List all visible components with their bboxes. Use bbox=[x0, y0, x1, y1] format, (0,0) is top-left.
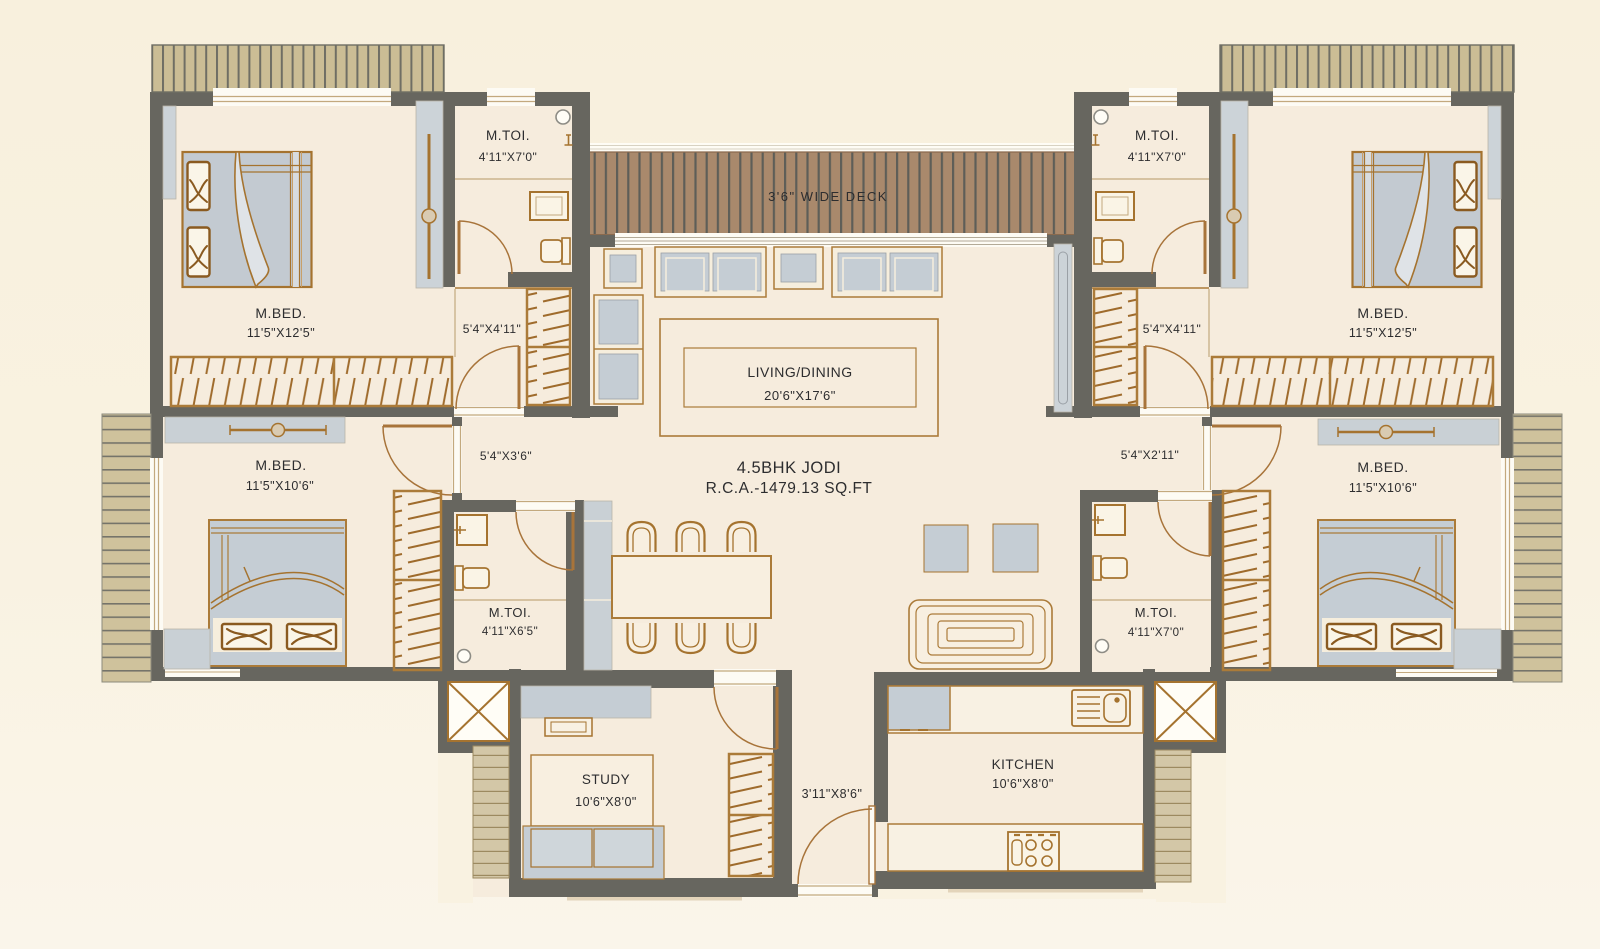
svg-text:STUDY: STUDY bbox=[582, 772, 630, 787]
svg-text:R.C.A.-1479.13 SQ.FT: R.C.A.-1479.13 SQ.FT bbox=[706, 480, 873, 497]
svg-text:11'5"X10'6": 11'5"X10'6" bbox=[246, 479, 314, 493]
svg-text:10'6"X8'0": 10'6"X8'0" bbox=[575, 795, 637, 809]
svg-text:11'5"X10'6": 11'5"X10'6" bbox=[1349, 481, 1417, 495]
svg-text:M.BED.: M.BED. bbox=[1357, 459, 1408, 475]
svg-text:5'4"X2'11": 5'4"X2'11" bbox=[1121, 448, 1180, 462]
svg-text:LIVING/DINING: LIVING/DINING bbox=[747, 364, 852, 380]
svg-text:M.BED.: M.BED. bbox=[255, 457, 306, 473]
svg-text:4'11"X7'0": 4'11"X7'0" bbox=[479, 150, 538, 164]
svg-text:5'4"X4'11": 5'4"X4'11" bbox=[463, 322, 522, 336]
svg-text:M.TOI.: M.TOI. bbox=[486, 128, 530, 143]
svg-text:5'4"X3'6": 5'4"X3'6" bbox=[480, 449, 532, 463]
svg-text:11'5"X12'5": 11'5"X12'5" bbox=[247, 326, 315, 340]
svg-text:5'4"X4'11": 5'4"X4'11" bbox=[1143, 322, 1202, 336]
svg-text:4.5BHK JODI: 4.5BHK JODI bbox=[737, 459, 842, 477]
svg-text:M.TOI.: M.TOI. bbox=[489, 605, 531, 620]
svg-text:4'11"X6'5": 4'11"X6'5" bbox=[482, 626, 538, 638]
svg-text:M.BED.: M.BED. bbox=[1357, 305, 1408, 321]
svg-text:3'11"X8'6": 3'11"X8'6" bbox=[802, 787, 863, 801]
svg-text:4'11"X7'0": 4'11"X7'0" bbox=[1128, 150, 1187, 164]
svg-text:10'6"X8'0": 10'6"X8'0" bbox=[992, 777, 1054, 791]
svg-text:KITCHEN: KITCHEN bbox=[992, 757, 1055, 772]
svg-text:4'11"X7'0": 4'11"X7'0" bbox=[1128, 627, 1184, 639]
svg-text:3'6" WIDE DECK: 3'6" WIDE DECK bbox=[768, 189, 888, 204]
svg-text:M.TOI.: M.TOI. bbox=[1135, 128, 1179, 143]
svg-text:M.BED.: M.BED. bbox=[255, 305, 306, 321]
svg-text:20'6"X17'6": 20'6"X17'6" bbox=[764, 388, 836, 403]
svg-text:M.TOI.: M.TOI. bbox=[1135, 605, 1177, 620]
svg-text:11'5"X12'5": 11'5"X12'5" bbox=[1349, 326, 1417, 340]
